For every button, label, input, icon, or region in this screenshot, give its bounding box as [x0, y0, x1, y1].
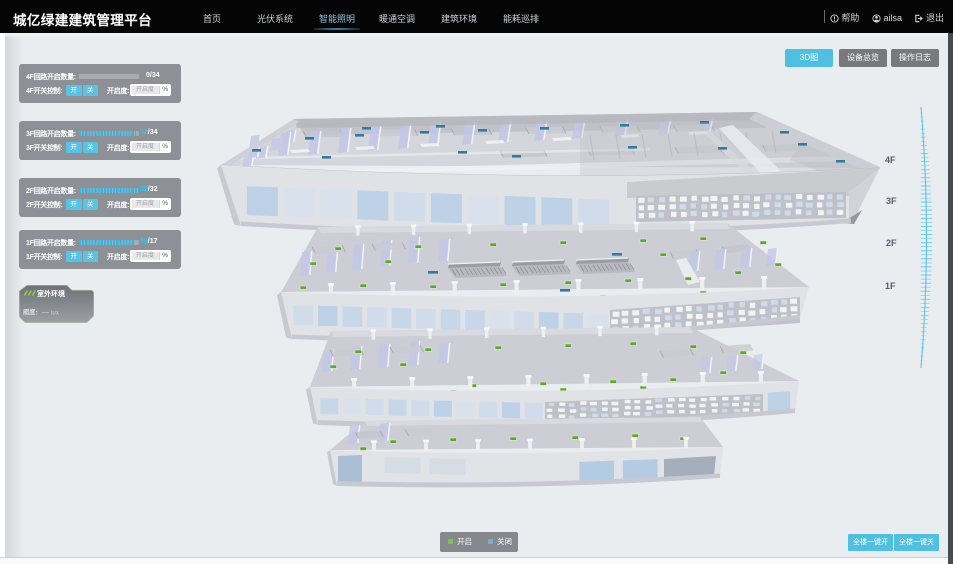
- svg-text:室外环境: 室外环境: [37, 289, 65, 298]
- svg-text:—: —: [42, 310, 49, 317]
- svg-text:照度:: 照度:: [23, 309, 37, 317]
- svg-text:lux: lux: [51, 310, 60, 317]
